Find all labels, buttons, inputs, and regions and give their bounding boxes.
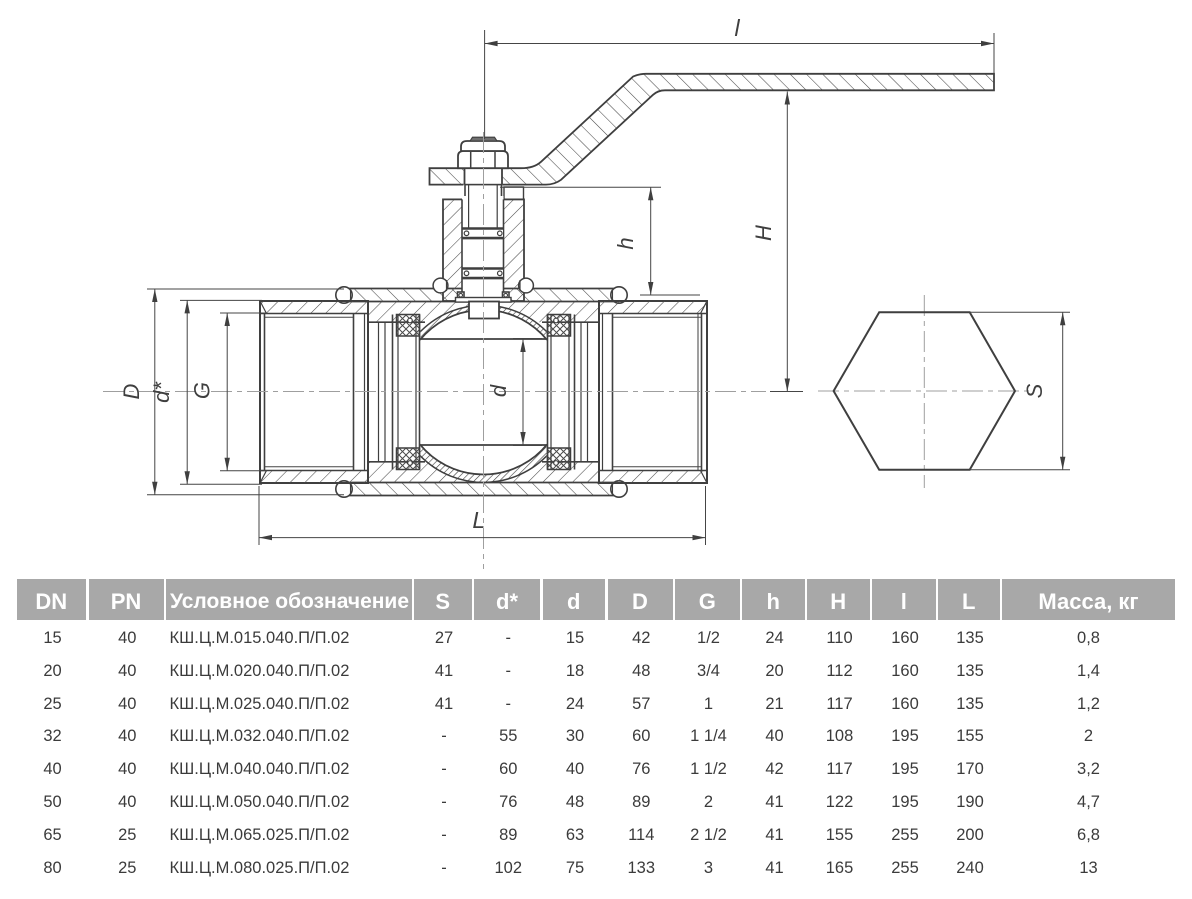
- svg-text:H: H: [751, 225, 776, 241]
- svg-text:l: l: [734, 15, 740, 41]
- svg-text:L: L: [472, 507, 485, 533]
- svg-text:d*: d*: [149, 381, 174, 403]
- svg-text:G: G: [190, 382, 215, 399]
- svg-text:D: D: [119, 383, 144, 399]
- svg-text:h: h: [613, 237, 638, 249]
- svg-text:S: S: [1022, 383, 1047, 398]
- svg-text:d: d: [486, 384, 511, 397]
